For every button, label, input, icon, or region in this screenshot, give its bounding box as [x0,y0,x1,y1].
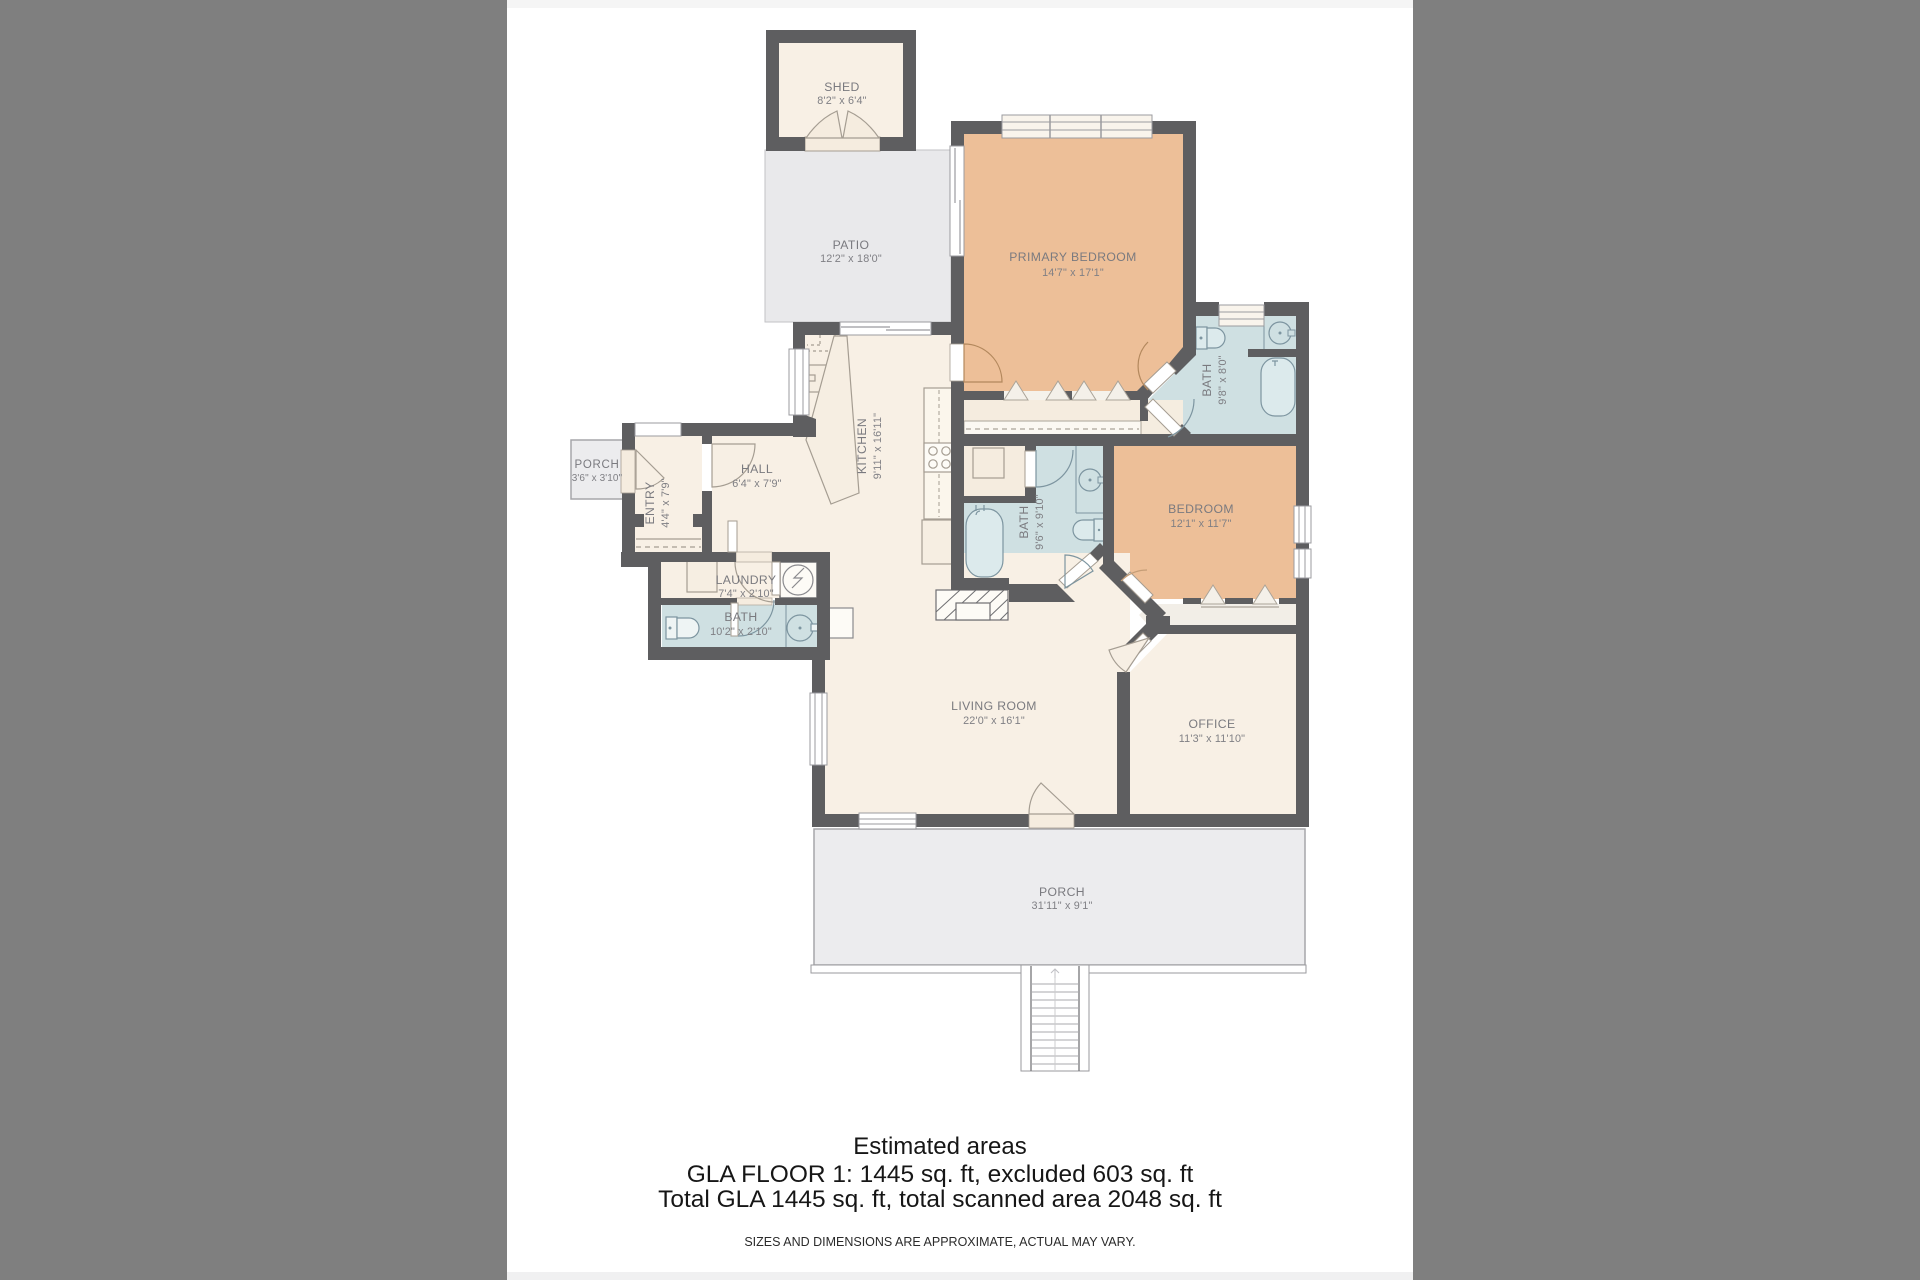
svg-text:BATH: BATH [724,610,757,624]
svg-text:4'4" x 7'9": 4'4" x 7'9" [660,478,672,527]
svg-text:Estimated areas: Estimated areas [853,1133,1026,1160]
svg-text:KITCHEN: KITCHEN [855,418,869,474]
svg-text:14'7" x 17'1": 14'7" x 17'1" [1042,267,1104,279]
svg-text:22'0" x 16'1": 22'0" x 16'1" [963,715,1025,727]
svg-text:HALL: HALL [741,462,773,476]
svg-text:10'2" x 2'10": 10'2" x 2'10" [710,626,772,638]
svg-text:12'2" x 18'0": 12'2" x 18'0" [820,253,882,265]
svg-text:ENTRY: ENTRY [643,481,657,524]
svg-text:9'6" x 9'10": 9'6" x 9'10" [1034,494,1046,550]
svg-text:SIZES AND DIMENSIONS ARE APPRO: SIZES AND DIMENSIONS ARE APPROXIMATE, AC… [744,1235,1135,1249]
svg-text:BATH: BATH [1017,505,1031,538]
svg-text:BEDROOM: BEDROOM [1168,502,1234,516]
svg-text:31'11" x 9'1": 31'11" x 9'1" [1031,900,1092,912]
svg-text:PRIMARY BEDROOM: PRIMARY BEDROOM [1009,250,1136,264]
svg-text:12'1" x 11'7": 12'1" x 11'7" [1170,518,1231,530]
svg-text:9'8" x 8'0": 9'8" x 8'0" [1217,355,1229,404]
svg-text:LAUNDRY: LAUNDRY [716,573,777,587]
svg-text:GLA FLOOR 1: 1445 sq. ft, excl: GLA FLOOR 1: 1445 sq. ft, excluded 603 s… [687,1161,1194,1188]
svg-text:PORCH: PORCH [1039,885,1085,899]
svg-text:PORCH: PORCH [574,459,619,471]
svg-text:BATH: BATH [1200,363,1214,396]
svg-text:SHED: SHED [824,80,859,94]
svg-text:PATIO: PATIO [833,238,870,252]
svg-text:3'6" x 3'10": 3'6" x 3'10" [572,473,623,484]
svg-text:11'3" x 11'10": 11'3" x 11'10" [1179,733,1245,745]
svg-text:9'11" x 16'11": 9'11" x 16'11" [872,413,884,479]
svg-text:8'2" x 6'4": 8'2" x 6'4" [817,95,866,107]
svg-text:LIVING ROOM: LIVING ROOM [951,699,1037,713]
svg-text:OFFICE: OFFICE [1188,717,1235,731]
svg-text:7'4" x 2'10": 7'4" x 2'10" [718,588,774,600]
svg-text:Total GLA 1445 sq. ft, total s: Total GLA 1445 sq. ft, total scanned are… [658,1186,1222,1213]
svg-text:6'4" x 7'9": 6'4" x 7'9" [732,478,781,490]
